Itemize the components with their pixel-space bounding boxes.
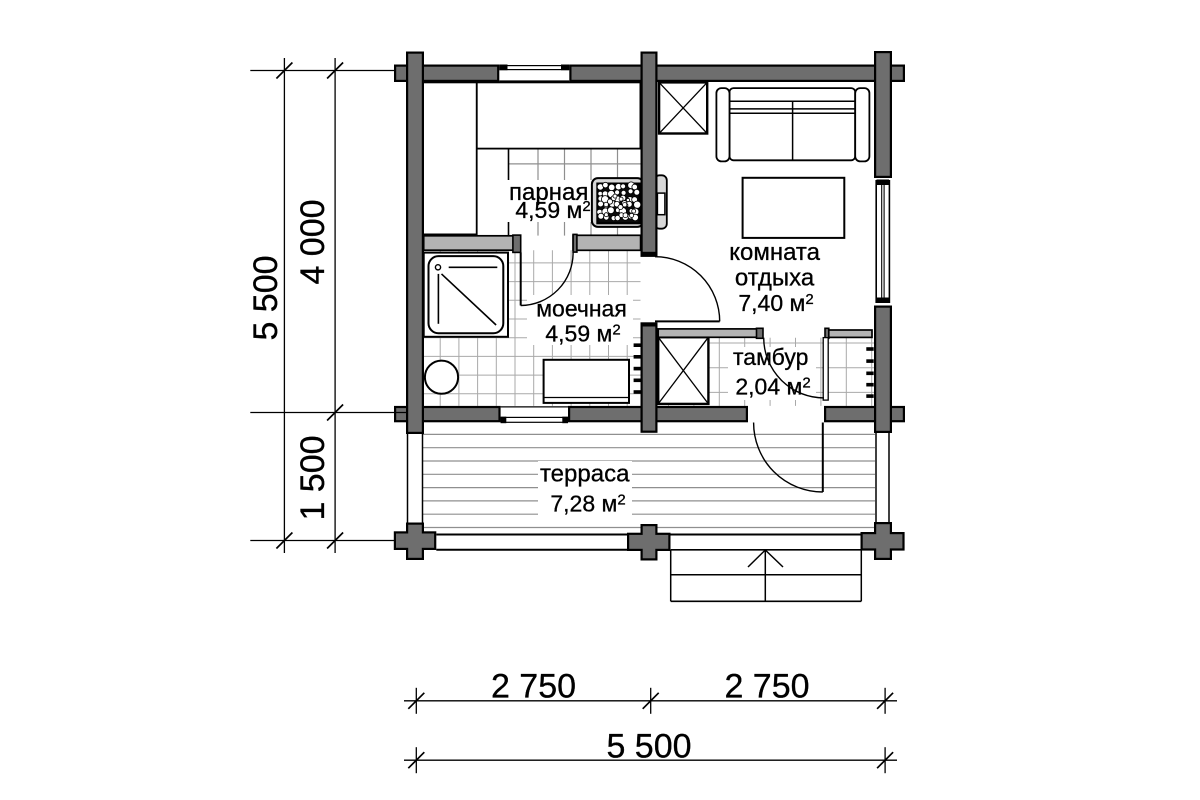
svg-text:5 500: 5 500 — [247, 255, 285, 340]
svg-text:отдыха: отдыха — [735, 265, 815, 292]
svg-text:7,28 м2: 7,28 м2 — [550, 491, 625, 517]
svg-text:4,59 м2: 4,59 м2 — [515, 197, 590, 223]
svg-text:7,40 м2: 7,40 м2 — [738, 290, 813, 316]
svg-text:комната: комната — [729, 239, 820, 266]
svg-text:2,04 м2: 2,04 м2 — [735, 374, 810, 400]
svg-text:4 000: 4 000 — [294, 199, 332, 284]
svg-text:терраса: терраса — [540, 461, 630, 488]
svg-text:моечная: моечная — [536, 296, 627, 322]
svg-text:5 500: 5 500 — [606, 728, 691, 766]
svg-text:4,59 м2: 4,59 м2 — [545, 321, 620, 347]
svg-text:1 500: 1 500 — [294, 435, 332, 520]
svg-text:тамбур: тамбур — [733, 344, 808, 370]
svg-text:2 750: 2 750 — [724, 668, 809, 706]
svg-text:2 750: 2 750 — [491, 668, 576, 706]
